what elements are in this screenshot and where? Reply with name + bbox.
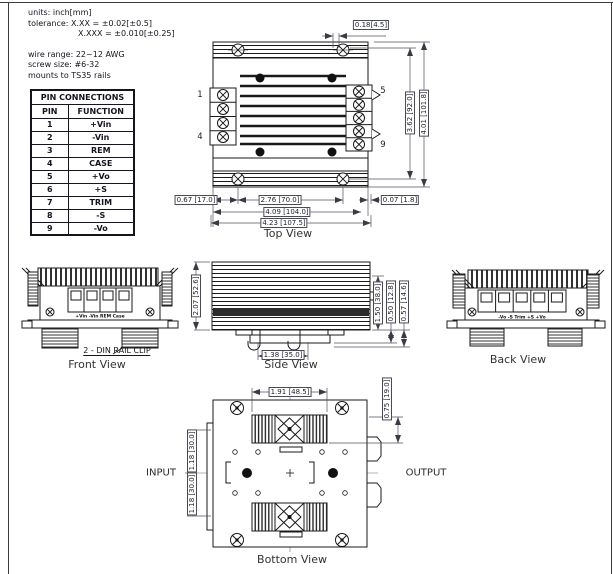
dim-lower-half: 1.18 [30.0] bbox=[187, 473, 197, 516]
table-row: 7TRIM bbox=[31, 196, 134, 209]
table-row: 6+S bbox=[31, 183, 134, 196]
dim-side-height: 2.07 [52.6] bbox=[191, 275, 201, 318]
dim-fin-height: 1.50 [38.0] bbox=[373, 282, 383, 325]
front-view-caption: Front View bbox=[68, 358, 125, 371]
drawing-notes: units: inch[mm] tolerance: X.XX = ±0.02[… bbox=[28, 8, 175, 81]
pin-number: 2 bbox=[31, 131, 68, 144]
dim-top-offset: 0.75 [19.0] bbox=[382, 378, 392, 421]
sheet-border-right bbox=[611, 2, 612, 574]
table-row: 9-Vo bbox=[31, 222, 134, 235]
dim-left-offset: 0.67 [17.0] bbox=[175, 195, 218, 205]
pin-number: 1 bbox=[31, 118, 68, 131]
pin-number: 9 bbox=[31, 222, 68, 235]
sheet-border-top bbox=[0, 2, 613, 3]
table-row: 3REM bbox=[31, 144, 134, 157]
pin-function: -Vin bbox=[68, 131, 134, 144]
top-view: 1 4 5 9 0.18[4.5] 3.62 [92.0] 4.01 [101.… bbox=[178, 12, 438, 250]
dim-body-width: 4.09 [104.0] bbox=[263, 207, 310, 217]
pin-function: CASE bbox=[68, 157, 134, 170]
pin-number: 6 bbox=[31, 183, 68, 196]
table-row: 2-Vin bbox=[31, 131, 134, 144]
pin-function: -S bbox=[68, 209, 134, 222]
pin-label-5: 5 bbox=[380, 86, 385, 96]
dim-total-height: 4.01 [101.8] bbox=[419, 89, 429, 136]
note-wire-range: wire range: 22~12 AWG bbox=[28, 50, 175, 61]
front-view: +Vin -Vin REM Case 2 - DIN RAIL CLIP Fro… bbox=[14, 250, 189, 378]
dim-clip-offset: 0.57 [14.6] bbox=[399, 281, 409, 324]
din-rail-clip-callout: 2 - DIN RAIL CLIP bbox=[83, 346, 150, 356]
pin-function: +S bbox=[68, 183, 134, 196]
note-tolerance-2: X.XXX = ±0.010[±0.25] bbox=[78, 29, 175, 40]
bottom-view: 1.91 [48.5] 0.75 [19.0] 1.18 [30.0] 1.18… bbox=[135, 382, 465, 574]
dim-screw-offset: 0.18[4.5] bbox=[353, 20, 389, 30]
pin-table-header-pin: PIN bbox=[31, 104, 68, 118]
dim-body-height: 3.62 [92.0] bbox=[405, 92, 415, 135]
drawing-sheet: units: inch[mm] tolerance: X.XX = ±0.02[… bbox=[0, 0, 613, 574]
table-row: 1+Vin bbox=[31, 118, 134, 131]
back-view: -Vo -S Trim +S +Vo Back View bbox=[440, 250, 610, 376]
dim-fan-span: 1.91 [48.5] bbox=[269, 387, 312, 397]
table-row: 8-S bbox=[31, 209, 134, 222]
pin-function: REM bbox=[68, 144, 134, 157]
top-view-caption: Top View bbox=[264, 227, 312, 240]
note-screw-size: screw size: #6-32 bbox=[28, 60, 175, 71]
side-view-caption: Side View bbox=[264, 358, 317, 371]
pin-function: +Vo bbox=[68, 170, 134, 183]
sheet-border-left bbox=[8, 2, 9, 574]
pin-label-4: 4 bbox=[197, 132, 202, 142]
pin-function: TRIM bbox=[68, 196, 134, 209]
dim-screw-span: 2.76 [70.0] bbox=[259, 195, 302, 205]
input-label: INPUT bbox=[146, 468, 176, 479]
pin-number: 5 bbox=[31, 170, 68, 183]
pin-number: 7 bbox=[31, 196, 68, 209]
pin-connections-table: PIN CONNECTIONS PIN FUNCTION 1+Vin 2-Vin… bbox=[30, 89, 135, 236]
side-view: 2.07 [52.6] 1.50 [38.0] 0.50 [12.8] 0.57… bbox=[188, 252, 418, 378]
pin-number: 8 bbox=[31, 209, 68, 222]
pin-number: 3 bbox=[31, 144, 68, 157]
dim-right-offset: 0.07 [1.8] bbox=[381, 195, 419, 205]
pin-label-1: 1 bbox=[197, 90, 202, 100]
pin-table-header-function: FUNCTION bbox=[68, 104, 134, 118]
back-terminal-labels: -Vo -S Trim +S +Vo bbox=[498, 316, 545, 321]
dim-upper-half: 1.18 [30.0] bbox=[187, 430, 197, 473]
pin-function: +Vin bbox=[68, 118, 134, 131]
bottom-view-caption: Bottom View bbox=[257, 553, 327, 566]
output-label: OUTPUT bbox=[406, 468, 447, 479]
table-row: 4CASE bbox=[31, 157, 134, 170]
note-mounting: mounts to TS35 rails bbox=[28, 71, 175, 82]
note-tolerance-1: tolerance: X.XX = ±0.02[±0.5] bbox=[28, 19, 175, 30]
front-terminal-labels: +Vin -Vin REM Case bbox=[75, 315, 124, 320]
table-row: 5+Vo bbox=[31, 170, 134, 183]
note-units: units: inch[mm] bbox=[28, 8, 175, 19]
dim-rail-offset: 0.50 [12.8] bbox=[386, 281, 396, 324]
pin-function: -Vo bbox=[68, 222, 134, 235]
pin-number: 4 bbox=[31, 157, 68, 170]
back-view-caption: Back View bbox=[490, 353, 546, 366]
pin-label-9: 9 bbox=[380, 140, 385, 150]
pin-table-title: PIN CONNECTIONS bbox=[31, 90, 134, 104]
